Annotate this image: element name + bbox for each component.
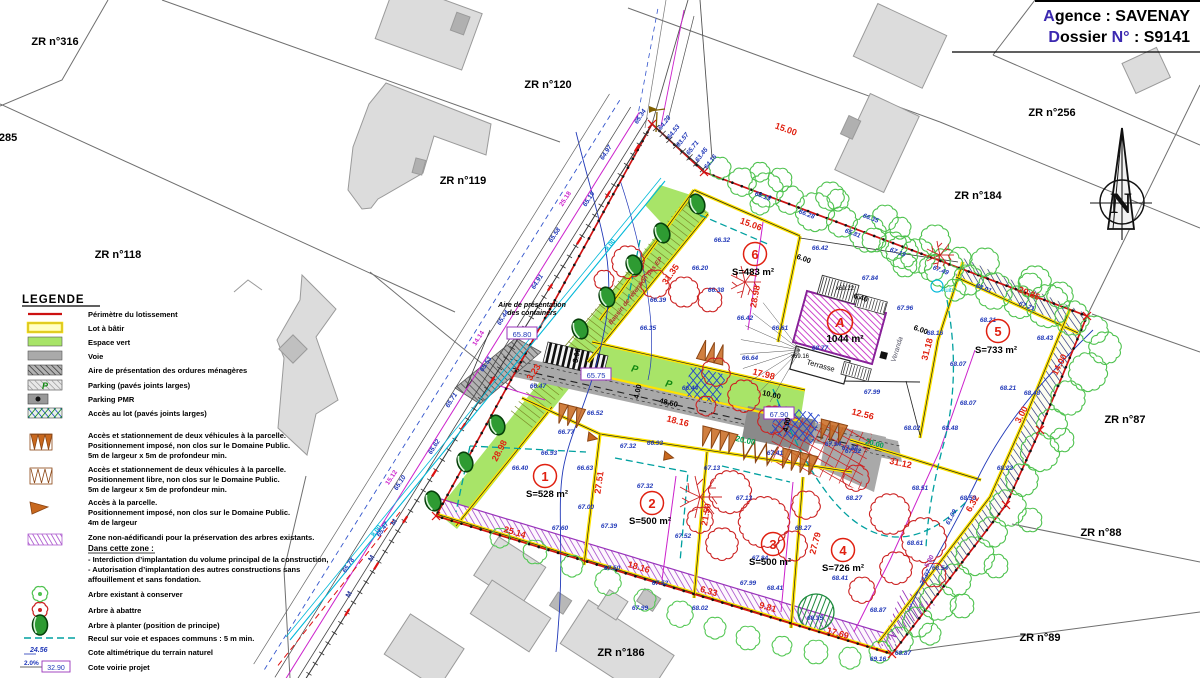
svg-text:31.18: 31.18 — [919, 337, 934, 361]
svg-text:25.18: 25.18 — [558, 190, 573, 208]
svg-text:66.32: 66.32 — [714, 237, 731, 244]
svg-text:LEGENDE: LEGENDE — [22, 294, 85, 306]
svg-text:68.35: 68.35 — [807, 615, 824, 622]
svg-text:67.60: 67.60 — [552, 525, 569, 532]
svg-text:Dans cette zone :: Dans cette zone : — [88, 544, 154, 553]
svg-text:66.63: 66.63 — [577, 465, 594, 472]
svg-text:67.52: 67.52 — [652, 580, 669, 587]
svg-text:Positionnement imposé, non clo: Positionnement imposé, non clos sur le D… — [88, 441, 290, 450]
svg-text:M: M — [345, 590, 354, 599]
svg-text:Cote altimétrique du terrain n: Cote altimétrique du terrain naturel — [88, 648, 213, 657]
svg-text:Agence : SAVENAY: Agence : SAVENAY — [1043, 8, 1190, 25]
svg-text:Espace vert: Espace vert — [88, 338, 131, 347]
svg-text:68.41: 68.41 — [832, 575, 849, 582]
svg-text:4: 4 — [839, 543, 847, 558]
svg-text:ZR n°89: ZR n°89 — [1019, 632, 1060, 644]
svg-text:67.52: 67.52 — [675, 533, 692, 540]
svg-text:65.19: 65.19 — [582, 190, 597, 208]
svg-text:M: M — [367, 554, 376, 563]
svg-text:66.20: 66.20 — [692, 265, 709, 272]
svg-text:Parking PMR: Parking PMR — [88, 395, 135, 404]
svg-text:2.0%: 2.0% — [24, 660, 39, 667]
svg-text:x69.22: x69.22 — [836, 286, 855, 292]
svg-text:18.16: 18.16 — [666, 414, 690, 429]
svg-text:27.51: 27.51 — [593, 471, 606, 495]
svg-text:67.41: 67.41 — [767, 450, 784, 457]
svg-text:15.00: 15.00 — [774, 121, 799, 138]
svg-text:Aire de présentation: Aire de présentation — [497, 302, 566, 309]
svg-text:des containers: des containers — [507, 310, 557, 317]
svg-text:Parking (pavés joints larges): Parking (pavés joints larges) — [88, 381, 191, 390]
svg-text:Positionnement imposé, non clo: Positionnement imposé, non clos sur le D… — [88, 508, 290, 517]
svg-text:Voie: Voie — [88, 352, 103, 361]
svg-text:ZR n°316: ZR n°316 — [31, 36, 78, 48]
svg-text:affouillement et sans fondatio: affouillement et sans fondation. — [88, 575, 201, 584]
svg-text:66.47: 66.47 — [530, 383, 547, 390]
svg-text:Arbre existant à conserver: Arbre existant à conserver — [88, 590, 183, 599]
svg-text:12.56: 12.56 — [851, 407, 875, 422]
svg-text:32.90: 32.90 — [47, 665, 65, 672]
svg-text:ZR n°186: ZR n°186 — [597, 647, 644, 659]
svg-text:4m de largeur: 4m de largeur — [88, 518, 137, 527]
svg-text:Périmètre du lotissement: Périmètre du lotissement — [88, 310, 178, 319]
svg-text:67.96: 67.96 — [897, 305, 914, 312]
svg-text:65.62: 65.62 — [427, 438, 442, 456]
svg-text:67.49: 67.49 — [932, 264, 950, 277]
svg-text:Dossier N° : S9141: Dossier N° : S9141 — [1048, 29, 1190, 46]
svg-text:65.58: 65.58 — [547, 226, 562, 244]
svg-text:65.81: 65.81 — [844, 227, 862, 240]
svg-text:68.27: 68.27 — [846, 495, 863, 502]
svg-text:66.42: 66.42 — [737, 315, 754, 322]
svg-text:- Interdiction d’implantation: - Interdiction d’implantation du volume … — [88, 555, 328, 564]
svg-text:64.91: 64.91 — [530, 273, 545, 291]
svg-text:65.78: 65.78 — [341, 557, 356, 575]
svg-text:S=726 m²: S=726 m² — [822, 563, 864, 574]
svg-text:N: N — [1110, 187, 1132, 220]
svg-text:3: 3 — [769, 537, 776, 552]
svg-text:Puits: Puits — [941, 288, 954, 294]
svg-text:Lot à bâtir: Lot à bâtir — [88, 324, 124, 333]
svg-text:66.39: 66.39 — [650, 297, 667, 304]
svg-text:63.57: 63.57 — [675, 131, 691, 148]
svg-text:ZR n°87: ZR n°87 — [1104, 414, 1145, 426]
svg-text:Recul sur voie et espaces comm: Recul sur voie et espaces communs : 5 m … — [88, 634, 254, 643]
svg-text:24.56: 24.56 — [29, 647, 48, 654]
svg-text:66.35: 66.35 — [862, 212, 880, 225]
svg-text:69.16: 69.16 — [870, 656, 887, 663]
svg-text:68.23: 68.23 — [997, 465, 1014, 472]
svg-text:66.44: 66.44 — [682, 385, 699, 392]
svg-text:A: A — [834, 315, 844, 330]
svg-text:68.87: 68.87 — [870, 607, 887, 614]
svg-text:Positionnement libre, non clos: Positionnement libre, non clos sur le Do… — [88, 475, 280, 484]
svg-text:66.64: 66.64 — [742, 355, 759, 362]
svg-text:68.27: 68.27 — [795, 525, 812, 532]
svg-text:67.32: 67.32 — [620, 443, 637, 450]
svg-text:Accès et stationnement de deux: Accès et stationnement de deux véhicules… — [88, 465, 286, 474]
svg-text:68.16: 68.16 — [927, 330, 944, 337]
svg-text:66.42: 66.42 — [812, 245, 829, 252]
svg-text:66.19: 66.19 — [754, 190, 772, 203]
svg-text:Veranda: Veranda — [890, 336, 904, 363]
svg-text:285: 285 — [0, 132, 17, 144]
svg-text:S=528 m²: S=528 m² — [526, 489, 568, 500]
svg-text:67.00: 67.00 — [578, 504, 595, 511]
svg-text:67.39: 67.39 — [601, 523, 618, 530]
svg-text:67.13: 67.13 — [704, 465, 721, 472]
svg-text:66.40: 66.40 — [512, 465, 529, 472]
svg-text:Accès à la parcelle.: Accès à la parcelle. — [88, 498, 157, 507]
svg-text:68.61: 68.61 — [907, 540, 924, 547]
svg-text:S=500 m²: S=500 m² — [629, 516, 671, 527]
svg-text:28.98: 28.98 — [748, 285, 762, 309]
svg-text:67.84: 67.84 — [862, 275, 879, 282]
svg-text:Zone non-aédificandi pour la p: Zone non-aédificandi pour la préservatio… — [88, 533, 314, 542]
svg-text:66.38: 66.38 — [708, 287, 725, 294]
svg-text:S=733 m²: S=733 m² — [975, 345, 1017, 356]
svg-text:67.50: 67.50 — [604, 565, 621, 572]
svg-text:Arbre à planter (position de p: Arbre à planter (position de principe) — [88, 621, 220, 630]
svg-text:67.84: 67.84 — [842, 445, 859, 452]
svg-text:Arbre à abattre: Arbre à abattre — [88, 606, 141, 615]
svg-text:6: 6 — [751, 247, 758, 262]
svg-text:5m de largeur x 5m de profonde: 5m de largeur x 5m de profondeur min. — [88, 485, 227, 494]
svg-text:66.35: 66.35 — [640, 325, 657, 332]
svg-text:Accès et stationnement de deux: Accès et stationnement de deux véhicules… — [88, 431, 286, 440]
svg-text:S=500 m²: S=500 m² — [749, 557, 791, 568]
svg-text:67.99: 67.99 — [740, 580, 757, 587]
svg-text:66.52: 66.52 — [587, 410, 604, 417]
svg-text:67.32: 67.32 — [637, 483, 654, 490]
svg-text:5m de largeur x 5m de profonde: 5m de largeur x 5m de profondeur min. — [88, 451, 227, 460]
svg-text:68.48: 68.48 — [942, 425, 959, 432]
svg-text:61.09: 61.09 — [945, 508, 959, 526]
svg-text:66.93: 66.93 — [647, 440, 664, 447]
svg-text:S=483 m²: S=483 m² — [732, 267, 774, 278]
svg-text:68.41: 68.41 — [767, 585, 784, 592]
svg-text:6.00: 6.00 — [795, 252, 812, 265]
svg-text:M: M — [390, 518, 399, 527]
svg-text:66.77: 66.77 — [558, 429, 575, 436]
svg-text:1: 1 — [541, 469, 548, 484]
svg-text:68.53: 68.53 — [960, 495, 977, 502]
svg-text:66.93: 66.93 — [541, 450, 558, 457]
svg-text:x69.16: x69.16 — [791, 354, 810, 360]
svg-text:68.02: 68.02 — [692, 605, 709, 612]
svg-text:68.87: 68.87 — [895, 650, 912, 657]
svg-text:65.80: 65.80 — [513, 330, 532, 339]
svg-text:8.00: 8.00 — [604, 238, 617, 253]
svg-text:6.40: 6.40 — [852, 291, 869, 304]
svg-text:Aire de présentation des ordur: Aire de présentation des ordures ménagèr… — [88, 366, 247, 375]
svg-text:67.13: 67.13 — [736, 495, 753, 502]
svg-text:2: 2 — [648, 496, 655, 511]
svg-text:64.97: 64.97 — [599, 144, 614, 162]
svg-text:67.99: 67.99 — [864, 389, 881, 396]
svg-text:ZR n°118: ZR n°118 — [95, 249, 142, 261]
svg-text:65.71: 65.71 — [444, 391, 459, 409]
svg-text:68.43: 68.43 — [1037, 335, 1054, 342]
svg-text:Accès au lot (pavés joints lar: Accès au lot (pavés joints larges) — [88, 409, 207, 418]
svg-text:27.79: 27.79 — [807, 531, 822, 555]
svg-text:65.75: 65.75 — [587, 371, 606, 380]
svg-text:5: 5 — [994, 324, 1001, 339]
svg-text:66.61: 66.61 — [772, 325, 789, 332]
svg-text:68.02: 68.02 — [904, 425, 921, 432]
svg-text:P: P — [42, 381, 49, 391]
svg-text:ZR n°88: ZR n°88 — [1080, 527, 1121, 539]
svg-text:Cote voirie projet: Cote voirie projet — [88, 663, 150, 672]
svg-text:66.28: 66.28 — [798, 208, 816, 221]
svg-text:68.51: 68.51 — [912, 485, 929, 492]
svg-text:64.29: 64.29 — [657, 114, 673, 131]
svg-text:68.48: 68.48 — [1024, 390, 1041, 397]
svg-text:68.07: 68.07 — [960, 400, 977, 407]
svg-text:ZR n°119: ZR n°119 — [440, 175, 487, 187]
svg-text:67.94: 67.94 — [825, 441, 842, 448]
svg-text:67.99: 67.99 — [632, 605, 649, 612]
svg-text:68.77: 68.77 — [812, 345, 829, 352]
svg-text:68.07: 68.07 — [950, 361, 967, 368]
svg-text:- Autorisation d’implantation: - Autorisation d’implantation des autres… — [88, 565, 300, 574]
svg-text:1044 m²: 1044 m² — [826, 334, 864, 345]
svg-text:ZR n°184: ZR n°184 — [954, 190, 1002, 202]
svg-text:ZR n°256: ZR n°256 — [1028, 107, 1075, 119]
svg-text:68.54: 68.54 — [932, 565, 949, 572]
svg-text:68.21: 68.21 — [1000, 385, 1017, 392]
svg-text:ZR n°120: ZR n°120 — [524, 79, 571, 91]
